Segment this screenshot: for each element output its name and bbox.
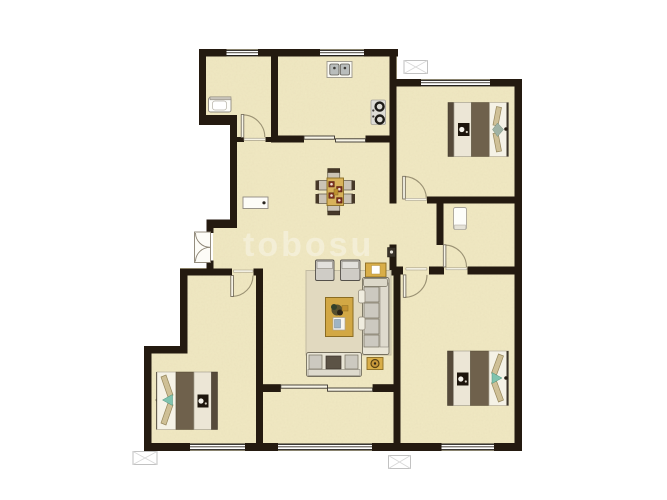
svg-text:tobosu: tobosu — [243, 226, 374, 264]
